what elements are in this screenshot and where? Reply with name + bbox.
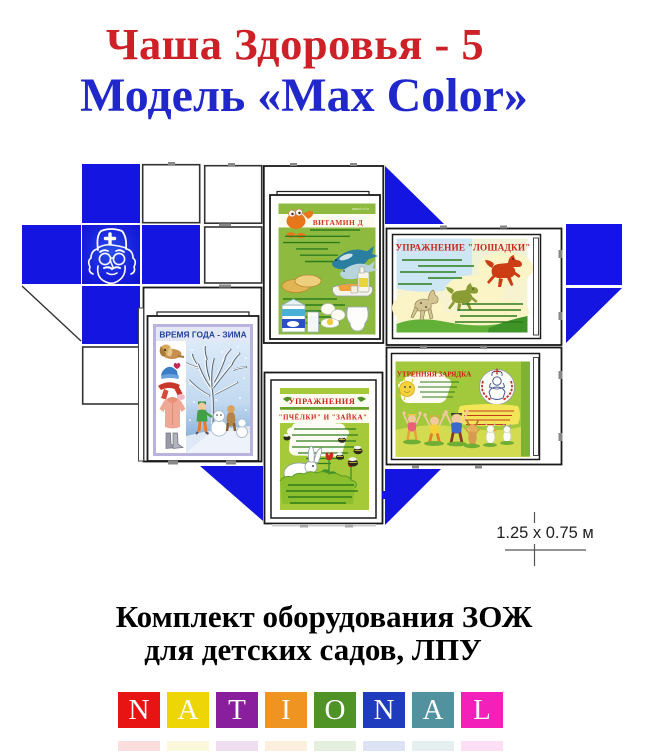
svg-text:УПРАЖНЕНИЯ: УПРАЖНЕНИЯ (289, 397, 356, 406)
svg-text:1.25 x 0.75 м: 1.25 x 0.75 м (496, 524, 594, 542)
svg-text:УТРЕННЯЯ ЗАРЯДКА: УТРЕННЯЯ ЗАРЯДКА (397, 371, 472, 379)
svg-text:ВРЕМЯ ГОДА - ЗИМА: ВРЕМЯ ГОДА - ЗИМА (159, 330, 246, 340)
svg-text:ВИТАМИН Д: ВИТАМИН Д (313, 218, 363, 227)
svg-text:www.t-rf.ru: www.t-rf.ru (352, 207, 369, 211)
svg-text:УПРАЖНЕНИЕ "ЛОШАДКИ": УПРАЖНЕНИЕ "ЛОШАДКИ" (395, 243, 530, 253)
